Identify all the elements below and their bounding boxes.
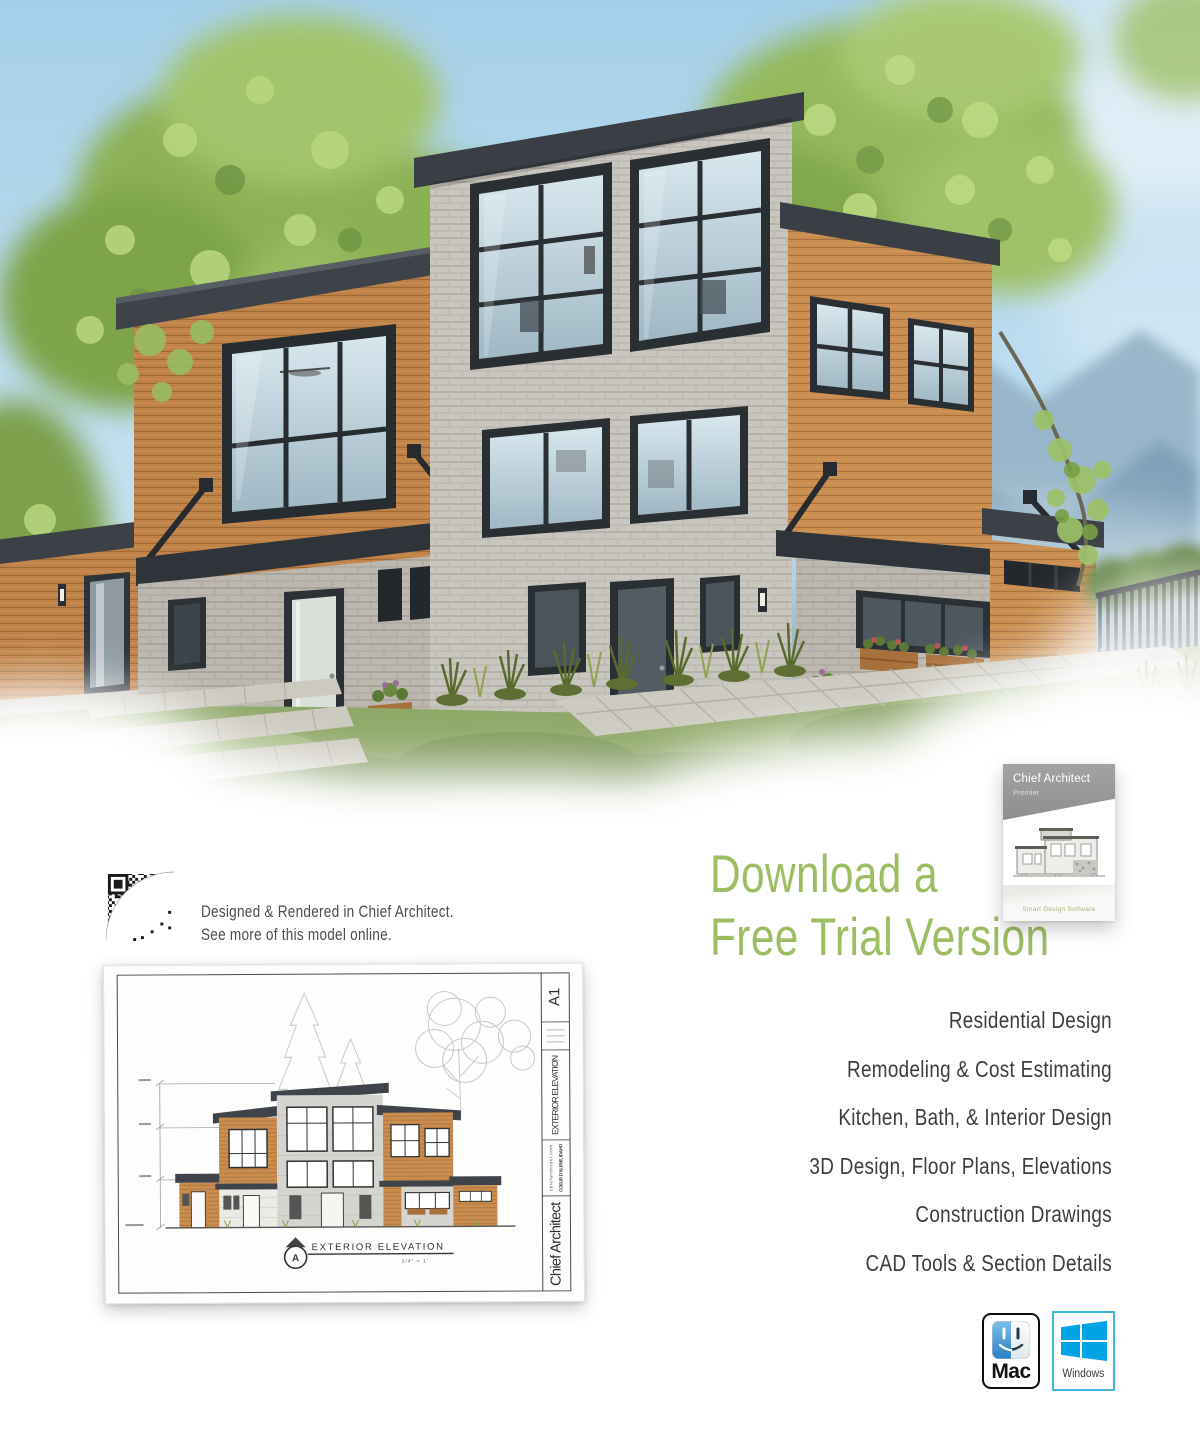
elevation-drawing-sheet: A1 EXTERIOR ELEVATION chiefarchitect.com…	[103, 963, 585, 1305]
brochure-page: Designed & Rendered in Chief Architect. …	[0, 0, 1200, 1450]
qr-caption-line2: See more of this model online.	[201, 923, 454, 946]
headline-line1: Download a	[710, 843, 1049, 906]
titleblock-heading: EXTERIOR ELEVATION	[550, 1055, 560, 1135]
product-box: Chief Architect Premier	[1003, 764, 1115, 921]
qr-caption: Designed & Rendered in Chief Architect. …	[201, 900, 454, 946]
feature-item: Kitchen, Bath, & Interior Design	[809, 1105, 1112, 1129]
feature-item: Remodeling & Cost Estimating	[809, 1057, 1112, 1081]
qr-caption-line1: Designed & Rendered in Chief Architect.	[201, 900, 454, 923]
feature-item: 3D Design, Floor Plans, Elevations	[809, 1154, 1112, 1178]
callout-scale: 1/4" = 1'	[402, 1259, 428, 1265]
mac-label: Mac	[991, 1360, 1030, 1384]
titleblock-site-line1: chiefarchitect.com	[548, 1145, 553, 1191]
sheet-number: A1	[546, 988, 563, 1006]
windows-label: Windows	[1063, 1368, 1105, 1380]
feature-item: Residential Design	[809, 1008, 1112, 1032]
product-box-tagline: Smart Design Software	[1003, 906, 1115, 913]
callout-label: EXTERIOR ELEVATION	[312, 1241, 444, 1253]
windows-logo-icon	[1061, 1321, 1107, 1361]
feature-item: CAD Tools & Section Details	[809, 1251, 1112, 1275]
feature-item: Construction Drawings	[809, 1202, 1112, 1226]
titleblock-site-line2: COEUR D'ALENE, IDAHO	[558, 1143, 563, 1191]
product-box-footer	[1003, 885, 1115, 921]
qr-code	[106, 871, 174, 945]
callout-letter: A	[292, 1253, 299, 1264]
product-box-edition: Premier	[1013, 788, 1039, 797]
product-box-house-sketch	[1011, 816, 1107, 890]
feature-list: Residential Design Remodeling & Cost Est…	[809, 1008, 1112, 1299]
titleblock-brand: Chief Architect	[548, 1202, 564, 1286]
finder-face-icon	[992, 1321, 1030, 1359]
headline: Download a Free Trial Version	[710, 843, 1049, 969]
headline-line2: Free Trial Version	[710, 906, 1049, 969]
product-box-brand: Chief Architect	[1013, 773, 1090, 785]
mac-platform-badge[interactable]: Mac	[982, 1313, 1040, 1389]
windows-platform-badge[interactable]: Windows	[1052, 1311, 1115, 1391]
elevation-drawing: A1 EXTERIOR ELEVATION chiefarchitect.com…	[104, 964, 584, 1303]
